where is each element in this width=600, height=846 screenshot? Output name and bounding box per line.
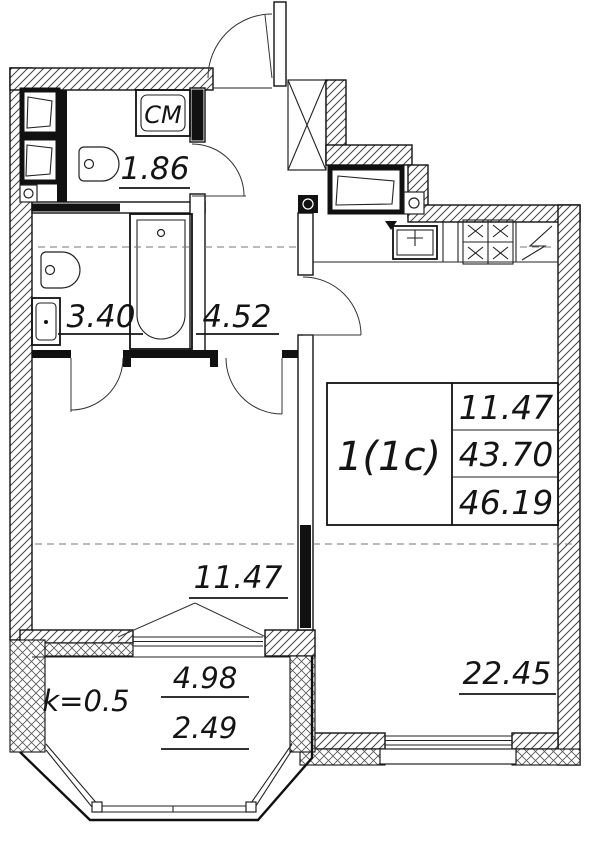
right-exterior-wall	[558, 205, 580, 765]
unit-apartment-area-value: 43.70	[459, 435, 553, 474]
bedroom-area-label: 11.47	[194, 560, 283, 596]
toilet-laundry-drain-icon	[85, 160, 94, 169]
bathtub-basin	[137, 220, 185, 339]
bedroom-bottom-wall-right	[265, 630, 315, 656]
balcony-full-area-label: 4.98	[173, 661, 238, 695]
bedroom-door	[226, 358, 282, 414]
balcony-glazing-post-left	[92, 802, 102, 812]
living-room-window	[385, 736, 512, 745]
bathroom-door	[71, 358, 123, 412]
bedroom-door-arc	[226, 358, 282, 414]
bedroom-balcony-window	[133, 637, 263, 646]
floor-plan-page: СМ 1.86 3.40	[0, 0, 600, 841]
balcony-reduced-area-label: 2.49	[173, 711, 238, 745]
stove	[463, 220, 513, 264]
kitchen-step-wall-horizontal	[326, 145, 412, 165]
balcony-structure	[10, 640, 315, 820]
partition-laundry-bathroom-solid	[32, 204, 120, 212]
hallway-area-label: 4.52	[202, 299, 271, 335]
wall-segment-center	[123, 350, 218, 358]
balcony-coefficient-label: k=0.5	[42, 684, 129, 718]
floor-plan-drawing: СМ 1.86 3.40	[0, 0, 600, 841]
top-exterior-wall	[10, 68, 213, 90]
living-area-label: 22.45	[463, 656, 552, 692]
plumbing-riser-post	[298, 195, 318, 213]
laundry-area-label: 1.86	[120, 151, 189, 187]
riser-box-icon	[409, 198, 419, 208]
unit-living-area-value: 11.47	[459, 388, 553, 427]
living-bottom-wall-right	[512, 733, 558, 749]
balcony-glazing-outer	[46, 744, 292, 806]
apartment-info-table: 1(1c) 11.47 43.70 46.19	[327, 383, 558, 525]
unit-type-label: 1(1c)	[337, 434, 441, 480]
laundry-door-arc	[192, 144, 244, 196]
entrance-door-arc	[208, 14, 272, 78]
bathroom-door-arc	[71, 358, 123, 410]
bathroom-sink-drain-icon	[44, 320, 48, 324]
washing-machine-label: СМ	[144, 101, 182, 129]
door-jamb-stub-2	[210, 350, 218, 367]
door-jamb-stub-1	[123, 350, 131, 367]
living-room-door	[303, 277, 361, 335]
laundry-door	[192, 144, 246, 196]
entrance-door	[208, 14, 272, 78]
balcony-bay-outline	[20, 656, 312, 820]
entrance-door-leaf	[265, 15, 272, 78]
floor-drain-icon	[24, 189, 33, 198]
bathtub-drain-icon	[158, 230, 165, 237]
kitchen-counter	[313, 222, 558, 262]
living-door-arc	[303, 277, 361, 335]
wall-hall-living-upper	[298, 213, 313, 275]
living-window-sill	[380, 749, 516, 764]
living-bottom-wall-left	[313, 733, 385, 749]
toilet-bathroom-drain-icon	[46, 266, 55, 275]
partition-laundry-hall-solid	[192, 90, 204, 141]
window-leader-lines	[118, 603, 266, 637]
wall-segment-bath-door-left	[32, 350, 71, 358]
fridge-icon	[522, 226, 552, 260]
balcony-glazing-post-right	[246, 802, 256, 812]
kitchen-sink-cross-icon	[407, 230, 423, 246]
wall-bedroom-living-solid	[300, 525, 311, 628]
living-bottom-parapet-right	[512, 749, 580, 765]
bathroom-area-label: 3.40	[66, 299, 135, 335]
kitchen-top-wall	[408, 205, 580, 222]
entry-corridor-wall	[274, 2, 286, 86]
unit-total-area-value: 46.19	[459, 483, 553, 522]
